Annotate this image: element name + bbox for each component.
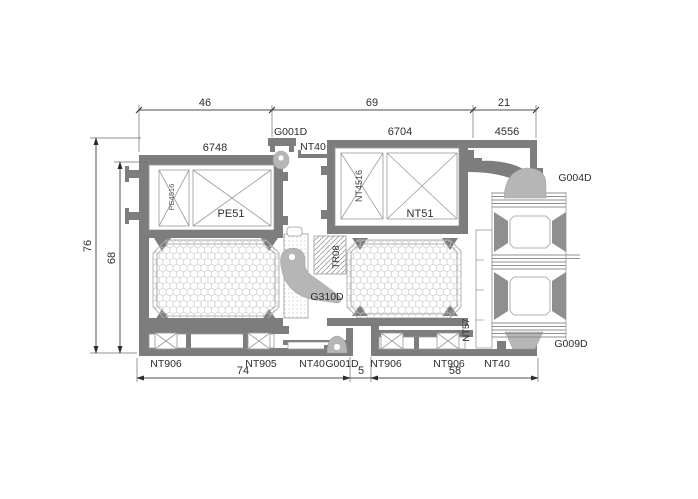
code-nt40-top-label: NT40 bbox=[300, 141, 326, 153]
sash-interlock-nub bbox=[321, 166, 327, 175]
frame-mount-tab-cap bbox=[125, 166, 129, 182]
gasket-clip-leg bbox=[289, 146, 294, 152]
dim-46-label: 46 bbox=[199, 97, 211, 109]
code-nt906-right1-label: NT906 bbox=[370, 358, 402, 370]
nt40-upturn-hook bbox=[497, 341, 506, 349]
dim-76-label: 76 bbox=[82, 240, 94, 252]
code-pe51-label: PE51 bbox=[218, 208, 245, 220]
sill-left-web bbox=[186, 334, 191, 348]
sill-right-web bbox=[414, 337, 419, 349]
frame-chamber-bottom-bar bbox=[139, 230, 283, 238]
code-nt906-right2-label: NT906 bbox=[433, 358, 465, 370]
code-g004d-label: G004D bbox=[558, 172, 592, 184]
sash-bottom-bar bbox=[327, 318, 468, 326]
frame-interlock-nub bbox=[283, 172, 288, 181]
code-g310d-label: G310D bbox=[310, 291, 344, 303]
dim-5-label: 5 bbox=[358, 365, 364, 377]
profile-cross-section-drawing: 46 69 21 G001D 6704 4556 6748 76 68 74 5… bbox=[0, 0, 698, 499]
dim-69-label: 69 bbox=[366, 97, 378, 109]
sash-chamber-bottom-bar bbox=[327, 226, 468, 234]
code-nt905-label: NT905 bbox=[245, 358, 277, 370]
code-g009d-label: G009D bbox=[554, 338, 588, 350]
nt40-top-profile bbox=[298, 154, 332, 158]
frame-chamber-right-wall bbox=[274, 165, 283, 235]
drawing-canvas: 46 69 21 G001D 6704 4556 6748 76 68 74 5… bbox=[0, 0, 698, 499]
frame-foam-chamber bbox=[153, 240, 279, 320]
frame-interlock-nub bbox=[283, 216, 288, 225]
code-nt40-bottom-right-label: NT40 bbox=[484, 358, 510, 370]
code-g001d-bottom-label: G001D bbox=[325, 358, 359, 370]
frame-mount-tab bbox=[128, 170, 139, 178]
sash-right-wall bbox=[459, 148, 468, 234]
code-nt906-left1-label: NT906 bbox=[150, 358, 182, 370]
dim-68-label: 68 bbox=[106, 252, 118, 264]
code-g001d-top-label: G001D bbox=[274, 126, 308, 138]
dim-21-label: 21 bbox=[498, 97, 510, 109]
gasket-hole bbox=[289, 254, 296, 261]
sash-interlock-nub bbox=[321, 210, 327, 219]
gasket-hole bbox=[334, 344, 341, 351]
code-4556-label: 4556 bbox=[495, 126, 519, 138]
upstand-cap-gasket bbox=[287, 227, 302, 236]
code-6748-label: 6748 bbox=[203, 142, 227, 154]
code-nt51-label: NT51 bbox=[407, 208, 434, 220]
code-pe4516-label: PE4516 bbox=[167, 184, 176, 211]
sash-left-wall bbox=[327, 148, 335, 234]
frame-bottom-bar bbox=[139, 318, 283, 326]
gasket-clip-leg bbox=[270, 146, 275, 152]
code-nt57-label: NT57 bbox=[461, 318, 472, 341]
sash-top-bar bbox=[327, 140, 537, 148]
code-6704-label: 6704 bbox=[388, 126, 412, 138]
frame-mount-tab-cap bbox=[125, 208, 129, 224]
frame-mount-tab bbox=[128, 212, 139, 220]
sill-right-bottom-flange-nt40 bbox=[371, 349, 537, 356]
gasket-hole bbox=[278, 155, 284, 161]
sill-left-web bbox=[243, 334, 248, 348]
code-tr08-label: TR08 bbox=[331, 245, 342, 268]
gasket-clip-bar bbox=[268, 138, 296, 146]
sash-foam-chamber bbox=[347, 240, 461, 318]
code-nt40-bottom-left-label: NT40 bbox=[299, 358, 325, 370]
frame-top-bar bbox=[139, 155, 283, 165]
nt57-bead-profile bbox=[476, 230, 492, 348]
code-nt4516-label: NT4516 bbox=[354, 170, 364, 202]
